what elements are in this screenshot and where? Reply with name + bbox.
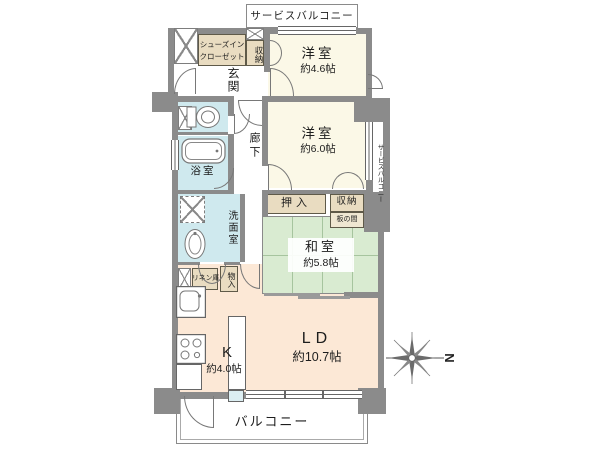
wall-right-lower: [378, 230, 384, 394]
wall-washroom-bottom-left: [178, 262, 200, 265]
wall-right-upper: [366, 28, 372, 100]
living-dining-size: 約10.7帖: [280, 350, 354, 364]
window-tick: [322, 390, 324, 399]
linen-label: リネン庫: [192, 275, 218, 283]
sliding-door-track-2: [298, 296, 350, 299]
wall-toilet-bath-div: [178, 132, 228, 135]
western2-name: 洋室: [294, 126, 342, 142]
storage-top-label: 収納: [247, 43, 263, 65]
western1-name: 洋室: [294, 46, 342, 62]
slop-sink: [228, 390, 244, 402]
wall-block-bottom-right: [358, 388, 386, 414]
oshiire-label: 押入: [266, 197, 326, 210]
hallway-label: 廊下: [245, 128, 260, 164]
wall-bath-corridor-2: [228, 134, 234, 194]
service-balcony-right-label: サービスバルコニー: [373, 124, 383, 222]
kitchen-size: 約4.0帖: [198, 363, 250, 375]
western1-outer-door: [368, 74, 383, 89]
balcony-label: バルコニー: [230, 415, 314, 430]
monoire-label: 物入: [222, 269, 236, 291]
wall-block-left: [152, 92, 178, 112]
floor-plan: N サービスバルコニー シューズイン クローゼット 収納 玄関 洋室 約4.6帖…: [0, 0, 600, 450]
japanese-room-name: 和室: [288, 240, 354, 255]
shaft-hatch-storage-top: [246, 28, 264, 40]
toilet-icon: [186, 103, 224, 131]
stove-icon: [176, 334, 206, 364]
window-western2-right: [365, 122, 373, 180]
japanese-room-size: 約5.8帖: [288, 257, 354, 269]
wall-oshiire-top: [262, 190, 372, 194]
japanese-room-label-group: 和室 約5.8帖: [288, 238, 354, 272]
western1-size: 約4.6帖: [290, 63, 346, 75]
service-balcony-top-label: サービスバルコニー: [246, 10, 358, 22]
entrance-label: 玄関: [223, 65, 239, 95]
washing-machine-pan: [180, 196, 205, 223]
washbasin-icon: [184, 228, 208, 260]
entrance-door: [174, 68, 196, 94]
bathtub-icon: [181, 138, 226, 164]
bathroom-label: 浴室: [178, 165, 228, 177]
kitchen-sink-icon: [176, 286, 206, 318]
washroom-label: 洗面室: [222, 200, 237, 256]
compass-icon: N: [386, 328, 456, 388]
kitchen-name: K: [212, 344, 242, 361]
window-tick: [284, 390, 286, 399]
storage-mid-label: 収納: [330, 197, 364, 208]
living-dining-name: LD: [288, 330, 346, 348]
western2-size: 約6.0帖: [290, 143, 346, 155]
itanoma-label: 板の間: [330, 216, 364, 224]
window-ld-balcony: [246, 390, 362, 399]
compass-n-label: N: [442, 353, 456, 362]
window-western1-top: [278, 26, 356, 35]
wall-corridor-right-1: [262, 100, 268, 166]
wall-bath-top: [172, 96, 234, 102]
shoes-closet-label: シューズイン クローゼット: [198, 39, 246, 63]
shaft-hatch-topleft: [174, 28, 198, 64]
wall-bath-washroom-div: [178, 190, 228, 194]
wall-washroom-corridor: [240, 194, 245, 262]
wall-washroom-bottom-right: [224, 262, 240, 265]
wall-western-divider: [262, 96, 372, 102]
